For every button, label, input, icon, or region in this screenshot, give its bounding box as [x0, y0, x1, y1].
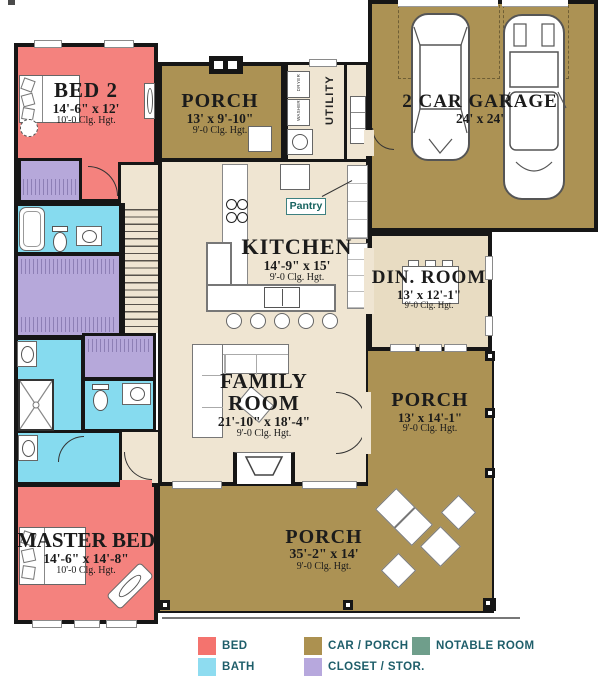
dining-window	[419, 344, 442, 352]
legend-swatch-bed	[198, 637, 216, 655]
garage-door-opening	[502, 0, 568, 7]
dining-chair	[442, 260, 453, 267]
porch-entry-steps	[209, 56, 243, 74]
dining-window	[485, 256, 493, 280]
bar-stool	[274, 313, 290, 329]
dining-cased-opening	[364, 248, 374, 314]
porch-bottom-room	[158, 486, 369, 613]
sofa-chaise	[192, 344, 223, 438]
dining-chair	[408, 260, 419, 267]
master-bed	[19, 527, 86, 585]
car-sedan	[500, 12, 568, 202]
pantry-shelves	[347, 165, 368, 239]
dining-window	[444, 344, 467, 352]
legend-label-bath: BATH	[222, 661, 255, 673]
master-entry-opening	[120, 480, 152, 489]
master-vanity-sink	[122, 383, 151, 405]
legend-swatch-closet	[304, 658, 322, 676]
bar-stool	[322, 313, 338, 329]
walkin-closet	[14, 253, 122, 338]
porch-post	[485, 351, 495, 361]
dining-window	[485, 316, 493, 336]
pantry-callout: Pantry	[286, 198, 326, 215]
bed2-window	[34, 40, 62, 48]
master-shower	[18, 379, 54, 431]
bar-stool	[250, 313, 266, 329]
fireplace	[233, 452, 295, 484]
cooktop-burner	[226, 212, 237, 223]
bath1-tub	[19, 207, 45, 251]
bed2-bed	[19, 75, 80, 123]
legend-label-bed: BED	[222, 640, 247, 652]
bath1-toilet	[52, 226, 68, 252]
legend-swatch-bath	[198, 658, 216, 676]
bed2-window	[104, 40, 134, 48]
porch-bench	[248, 126, 272, 152]
garage-door-opening	[398, 0, 498, 7]
dining-window	[390, 344, 416, 352]
legend-swatch-notable	[412, 637, 430, 655]
dryer-label: DRYER	[296, 71, 301, 94]
porch-post	[483, 598, 496, 611]
hall-upper	[118, 162, 158, 203]
master-bath-sink	[17, 341, 37, 367]
cooktop-burner	[237, 212, 248, 223]
master-closet	[82, 333, 156, 380]
bath1-sink	[76, 226, 102, 246]
utility-label: UTILITY	[324, 70, 336, 130]
front-door-opening	[362, 392, 371, 454]
garage-entry-opening	[364, 130, 374, 156]
utility-window	[309, 59, 337, 67]
porch-post	[485, 468, 495, 478]
bath2-sink	[18, 435, 38, 461]
porch-step-line	[162, 617, 520, 619]
crop-artifact	[8, 0, 15, 5]
master-window	[106, 620, 137, 628]
bar-stool	[226, 313, 242, 329]
porch-post	[160, 600, 170, 610]
legend-label-closet: CLOSET / STOR.	[328, 661, 425, 673]
cooktop-burner	[237, 199, 248, 210]
master-window	[74, 620, 100, 628]
porch-post	[485, 408, 495, 418]
legend-label-notable: NOTABLE ROOM	[436, 640, 535, 652]
floor-plan: DRYER WASHER UTILITY	[0, 0, 600, 677]
dining-table	[402, 266, 459, 304]
staircase	[122, 203, 158, 333]
dining-chair	[425, 260, 436, 267]
family-window	[302, 481, 357, 489]
bed2-plant	[20, 119, 38, 137]
bed2-closet	[18, 158, 82, 203]
legend-label-car-porch: CAR / PORCH	[328, 640, 408, 652]
master-window	[32, 620, 62, 628]
washer-label: WASHER	[296, 99, 301, 122]
master-toilet	[92, 384, 109, 411]
utility-sink	[287, 129, 313, 155]
cooktop-burner	[226, 199, 237, 210]
island-sink	[264, 287, 300, 308]
refrigerator	[280, 164, 310, 190]
car-suv	[409, 11, 472, 163]
legend-swatch-car-porch	[304, 637, 322, 655]
porch-post	[343, 600, 353, 610]
bed2-mirror	[144, 83, 155, 119]
bar-stool	[298, 313, 314, 329]
family-window	[172, 481, 222, 489]
